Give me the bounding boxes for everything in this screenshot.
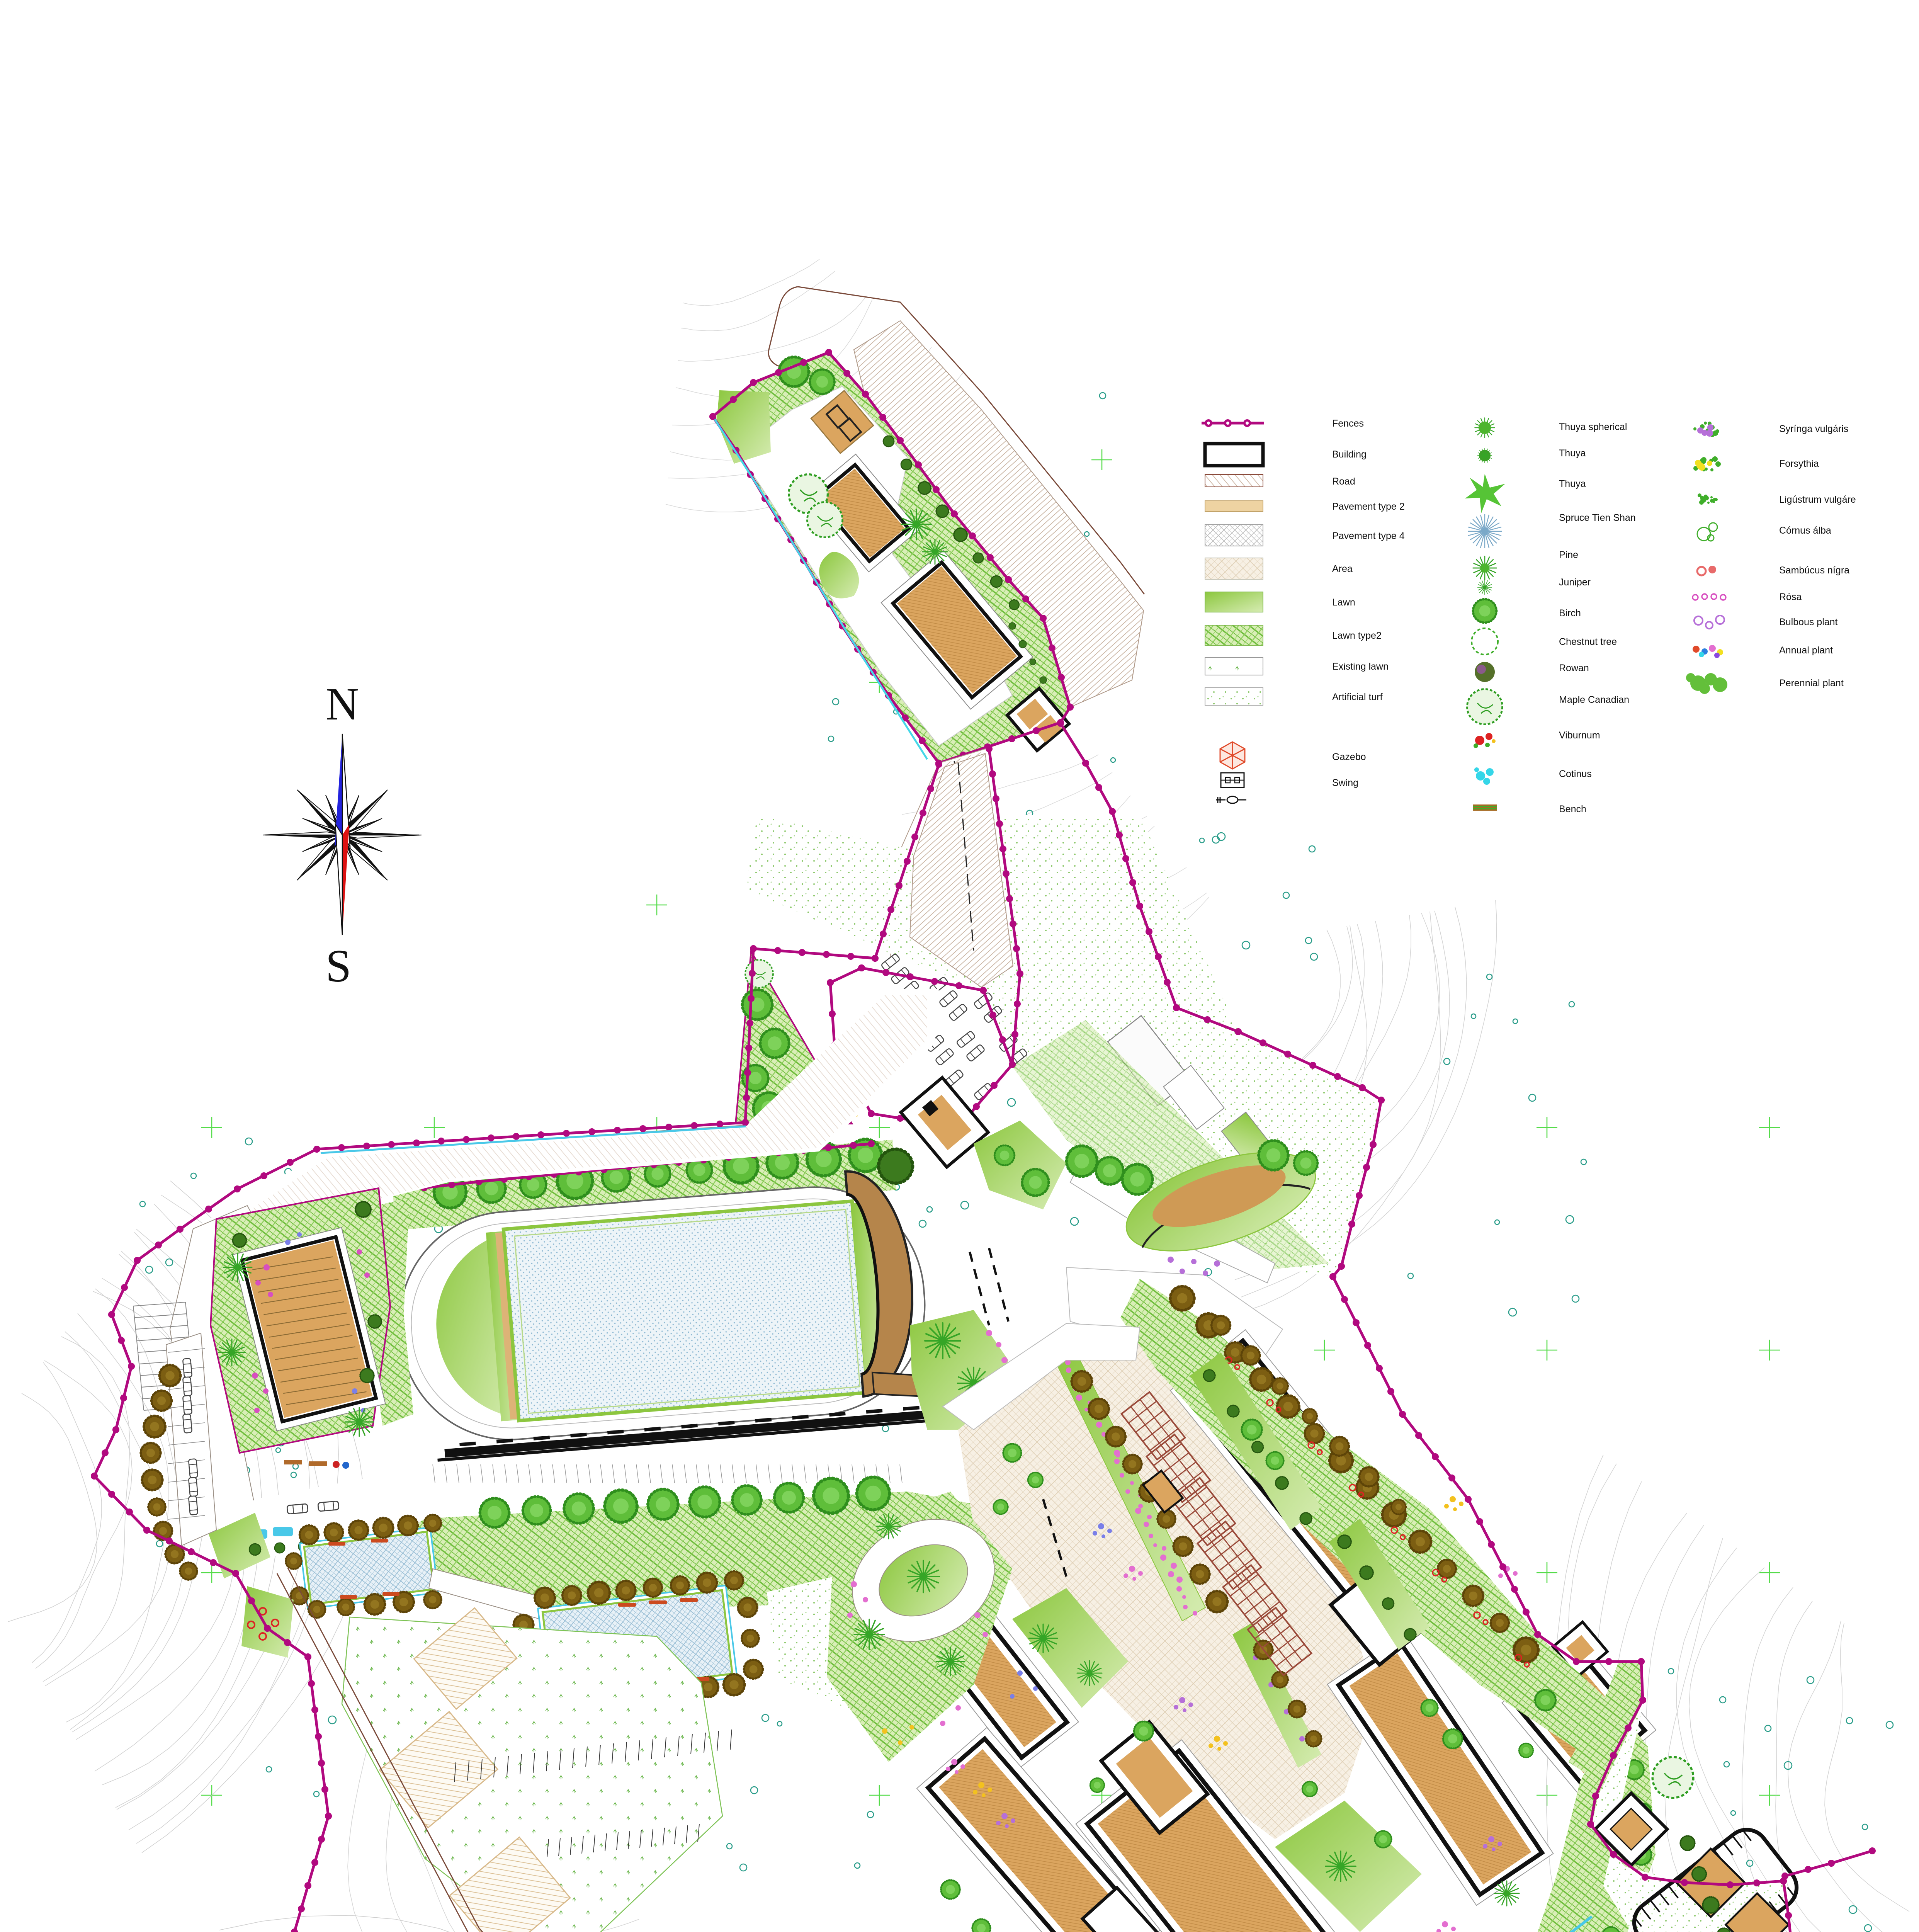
svg-text:Swing: Swing xyxy=(1332,777,1358,788)
svg-text:Road: Road xyxy=(1332,476,1355,487)
svg-text:Thuya spherical: Thuya spherical xyxy=(1559,422,1627,432)
svg-text:Juniper: Juniper xyxy=(1559,577,1591,588)
svg-text:Pavement type 2: Pavement type 2 xyxy=(1332,501,1405,512)
svg-text:Córnus álba: Córnus álba xyxy=(1779,525,1831,536)
svg-text:Gazebo: Gazebo xyxy=(1332,752,1366,762)
svg-text:Syrínga vulgáris: Syrínga vulgáris xyxy=(1779,423,1848,434)
svg-text:Rósa: Rósa xyxy=(1779,592,1802,602)
svg-text:Artificial turf: Artificial turf xyxy=(1332,692,1383,702)
svg-text:Building: Building xyxy=(1332,449,1367,460)
svg-text:Rowan: Rowan xyxy=(1559,663,1589,673)
svg-text:Forsythia: Forsythia xyxy=(1779,458,1819,469)
svg-text:Viburnum: Viburnum xyxy=(1559,730,1600,741)
svg-text:Maple Canadian: Maple Canadian xyxy=(1559,694,1629,705)
svg-text:Spruce Tien Shan: Spruce Tien Shan xyxy=(1559,512,1636,523)
svg-text:Pine: Pine xyxy=(1559,549,1578,560)
svg-text:Lawn type2: Lawn type2 xyxy=(1332,630,1382,641)
svg-text:Chestnut tree: Chestnut tree xyxy=(1559,636,1617,647)
svg-text:Lawn: Lawn xyxy=(1332,597,1355,608)
svg-text:S: S xyxy=(326,940,352,992)
svg-text:Area: Area xyxy=(1332,563,1353,574)
svg-text:Perennial plant: Perennial plant xyxy=(1779,678,1844,689)
svg-text:Existing lawn: Existing lawn xyxy=(1332,661,1389,672)
svg-text:Thuya: Thuya xyxy=(1559,478,1586,489)
svg-text:Thuya: Thuya xyxy=(1559,448,1586,459)
svg-text:Sambúcus nígra: Sambúcus nígra xyxy=(1779,565,1849,576)
svg-text:Annual plant: Annual plant xyxy=(1779,645,1833,656)
svg-text:Cotinus: Cotinus xyxy=(1559,769,1592,779)
svg-text:N: N xyxy=(326,678,359,730)
svg-text:Ligústrum vulgáre: Ligústrum vulgáre xyxy=(1779,494,1856,505)
svg-text:Bulbous plant: Bulbous plant xyxy=(1779,617,1838,628)
svg-text:Birch: Birch xyxy=(1559,608,1581,619)
svg-text:Fences: Fences xyxy=(1332,418,1364,429)
svg-text:Bench: Bench xyxy=(1559,804,1586,815)
svg-text:Pavement type 4: Pavement type 4 xyxy=(1332,531,1405,541)
